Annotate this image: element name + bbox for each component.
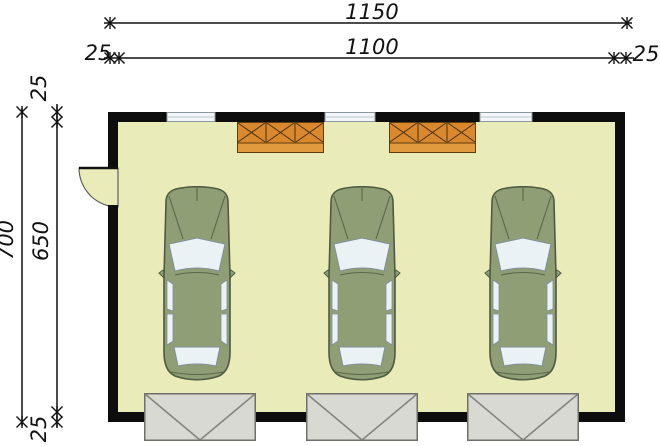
storage-cabinet-2 — [390, 123, 476, 153]
garage-door-3 — [468, 394, 579, 441]
dim-wall-left: 25 — [85, 41, 112, 65]
car-2 — [324, 187, 400, 380]
dim-width-inner: 1100 — [345, 35, 398, 59]
dim-height-total: 700 — [0, 220, 18, 260]
dim-wall-bottom: 25 — [27, 416, 51, 443]
floor-plan-page: 1150 1100 25 25 700 650 25 25 — [0, 0, 660, 446]
floor-plan-drawing: 1150 1100 25 25 700 650 25 25 — [0, 0, 660, 446]
dim-wall-right: 25 — [633, 42, 660, 66]
dim-height-inner: 650 — [29, 221, 53, 261]
dim-width-total: 1150 — [345, 0, 398, 24]
entry-door-swing — [79, 168, 118, 207]
window-2 — [325, 113, 375, 122]
storage-cabinet-1 — [238, 123, 324, 153]
window-1 — [167, 113, 215, 122]
dim-wall-top: 25 — [27, 75, 51, 102]
car-1 — [159, 187, 235, 380]
car-3 — [485, 187, 561, 380]
garage-door-2 — [307, 394, 418, 441]
window-3 — [480, 113, 532, 122]
garage-door-1 — [145, 394, 256, 441]
